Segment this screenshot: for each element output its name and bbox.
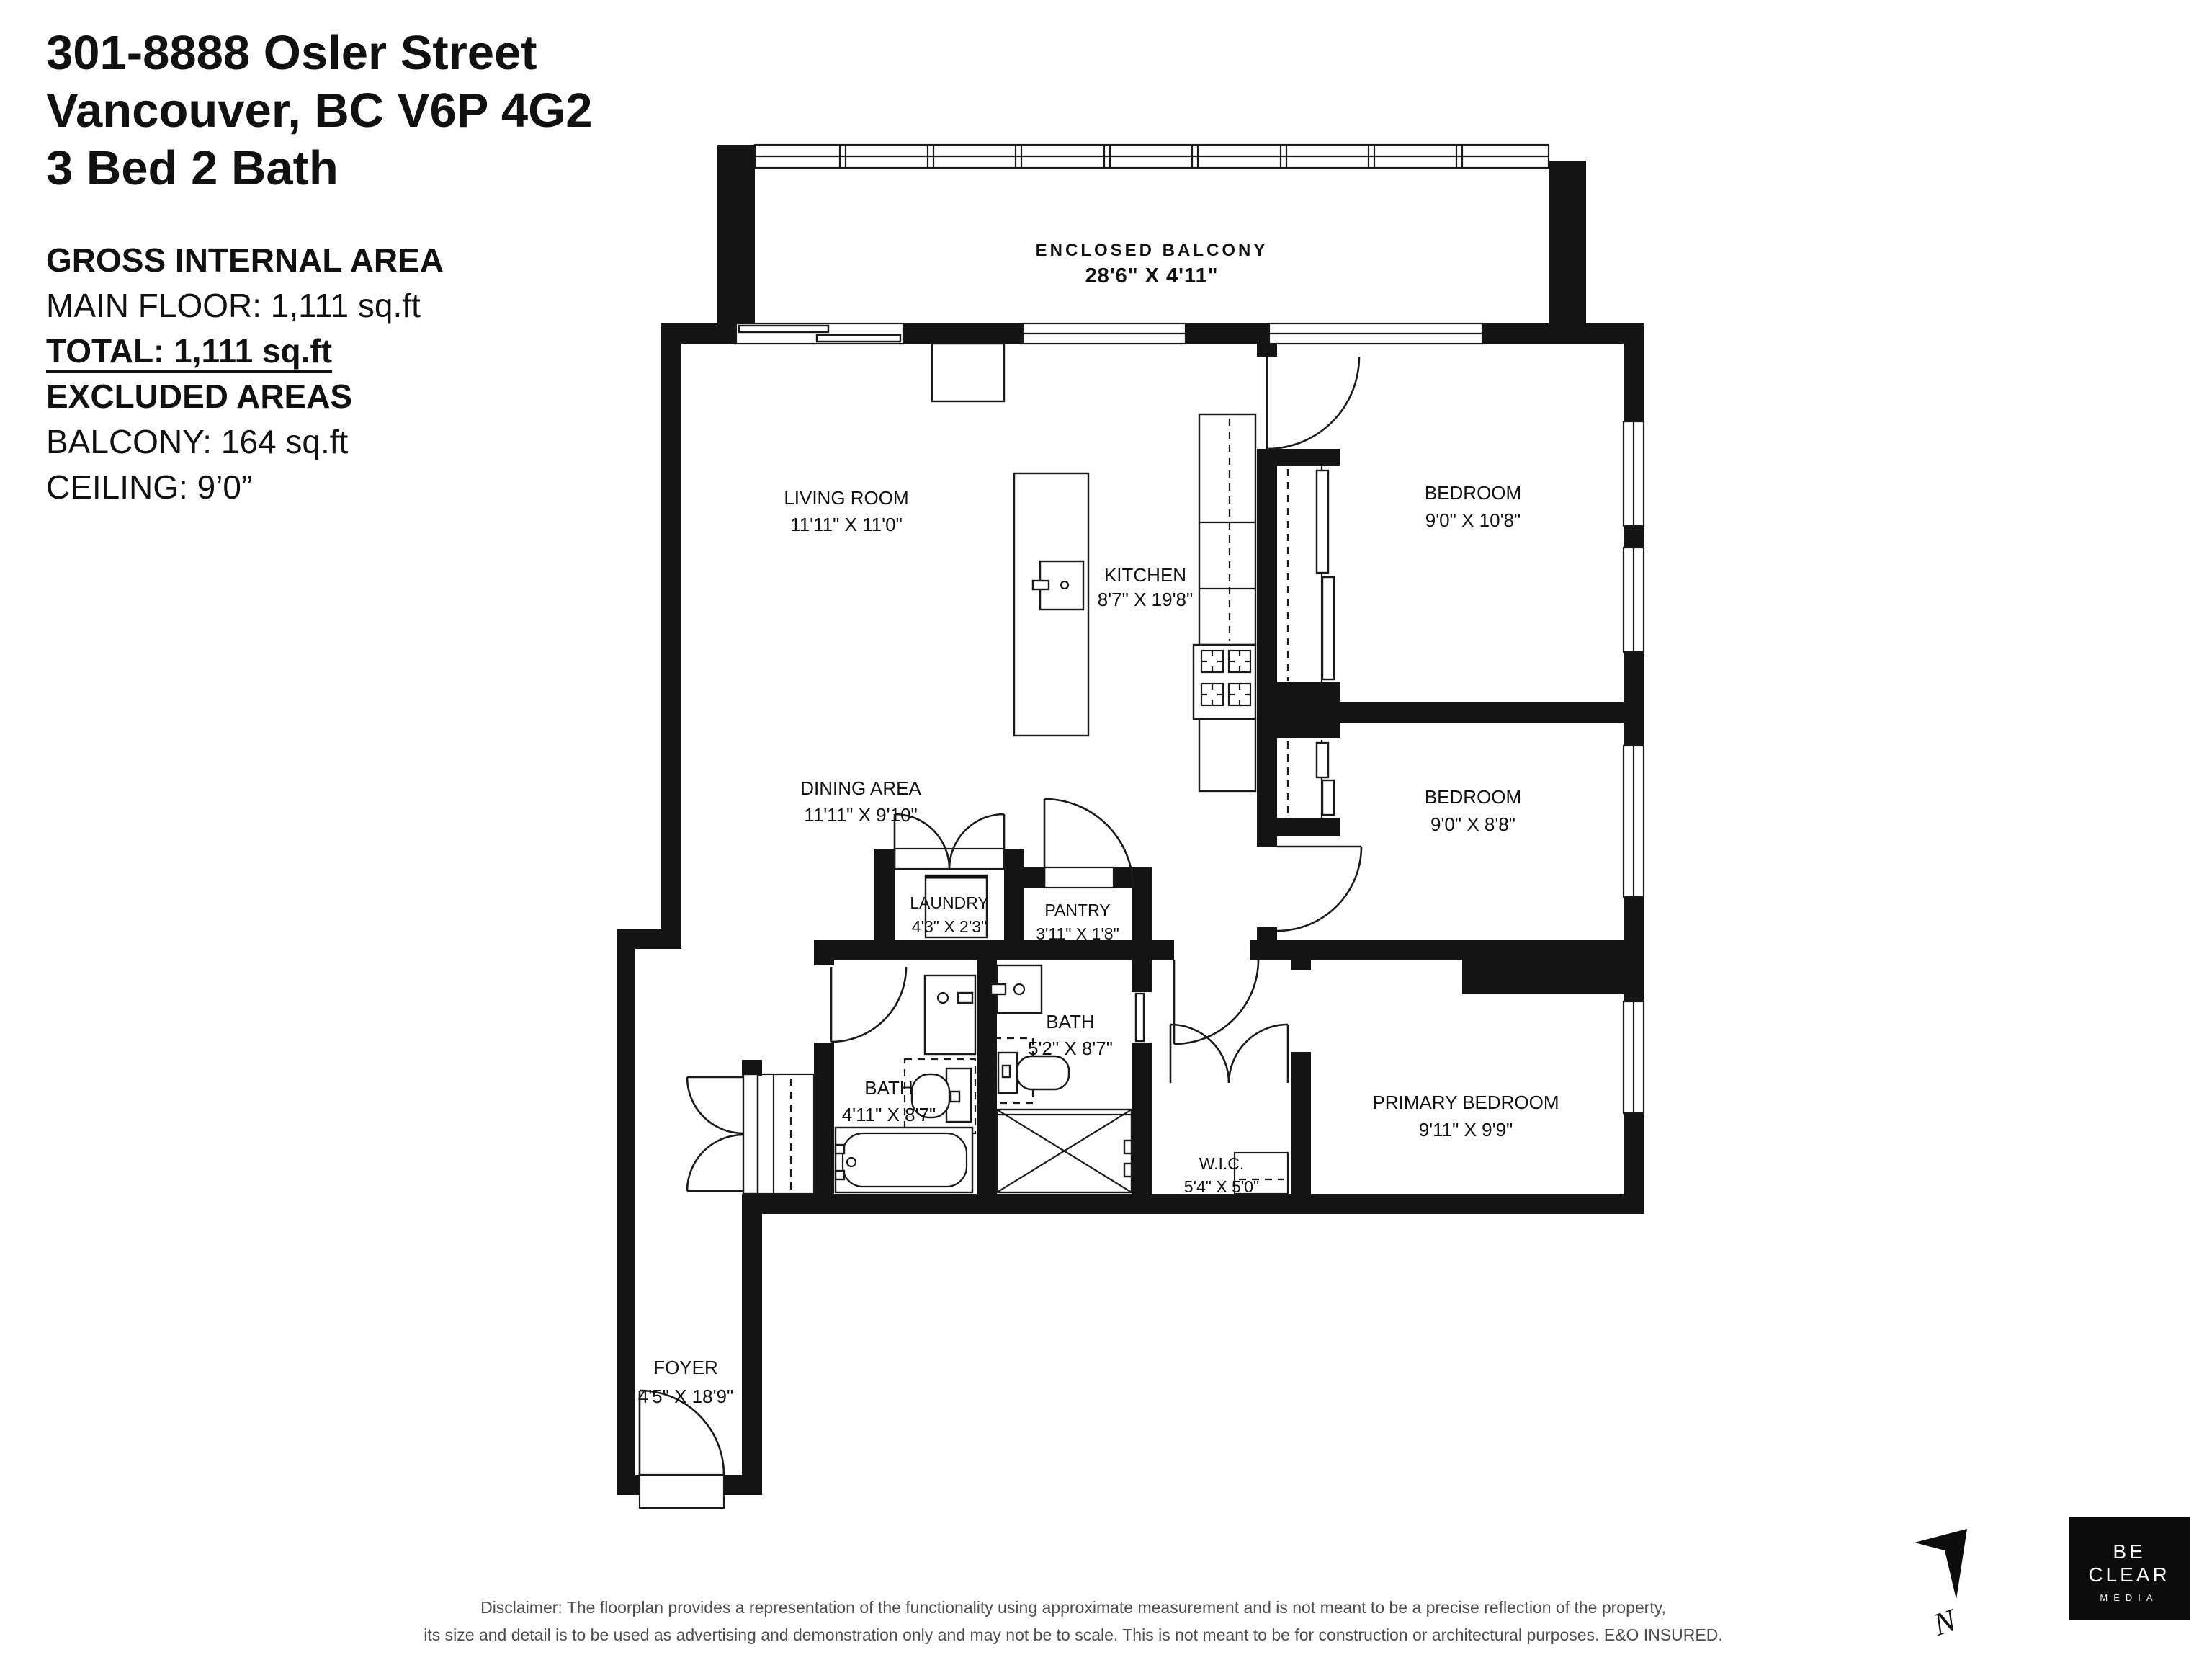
bedroom1-door xyxy=(1267,357,1359,449)
room-label-bedroom-1: BEDROOM xyxy=(1425,482,1521,504)
balcony-sliding-door xyxy=(736,323,903,344)
gross-internal-area-title: GROSS INTERNAL AREA xyxy=(46,238,444,283)
bath1-vanity xyxy=(925,976,975,1054)
bath2-door xyxy=(1136,994,1144,1041)
total-area: TOTAL: 1,111 sq.ft xyxy=(46,329,444,374)
room-dims-bedroom-2: 9'0" X 8'8" xyxy=(1430,813,1515,835)
room-dims-enclosed-balcony: 28'6" X 4'11" xyxy=(1085,264,1219,287)
room-label-kitchen: KITCHEN xyxy=(1104,564,1186,586)
room-dims-bath-2: 5'2" X 8'7" xyxy=(1028,1037,1113,1059)
foyer-closet xyxy=(743,1074,814,1194)
disclaimer-line-2: its size and detail is to be used as adv… xyxy=(173,1621,1974,1648)
bath2-vanity xyxy=(991,965,1042,1013)
living-top-window xyxy=(1023,323,1186,344)
room-dims-living-room: 11'11" X 11'0" xyxy=(790,514,903,535)
room-label-enclosed-balcony: ENCLOSED BALCONY xyxy=(1036,241,1268,260)
stove xyxy=(1194,645,1255,719)
bedroom1-window-1 xyxy=(1624,421,1644,526)
entry-door xyxy=(640,1391,724,1508)
bedroom2-door xyxy=(1277,847,1361,931)
ceiling-height: CEILING: 9’0” xyxy=(46,465,444,510)
bed-bath-count: 3 Bed 2 Bath xyxy=(46,140,593,197)
property-title: 301-8888 Osler Street Vancouver, BC V6P … xyxy=(46,24,593,197)
room-label-dining-area: DINING AREA xyxy=(800,777,921,799)
wic-doors xyxy=(1170,1025,1288,1083)
kitchen-counter xyxy=(1199,414,1255,791)
shower xyxy=(997,1110,1132,1192)
room-dims-wic: 5'4" X 5'0" xyxy=(1184,1177,1259,1196)
column xyxy=(932,344,1004,401)
balcony-area: BALCONY: 164 sq.ft xyxy=(46,419,444,465)
bathtub xyxy=(836,1128,972,1192)
north-arrow-icon xyxy=(1915,1529,1967,1599)
room-labels: ENCLOSED BALCONY 28'6" X 4'11" LIVING RO… xyxy=(638,241,1559,1407)
room-dims-dining-area: 11'11" X 9'10" xyxy=(804,804,918,826)
floorplan-page: 301-8888 Osler Street Vancouver, BC V6P … xyxy=(0,0,2212,1660)
excluded-areas-title: EXCLUDED AREAS xyxy=(46,374,444,419)
room-label-bath-main: BATH xyxy=(864,1077,913,1099)
north-label: N xyxy=(1928,1602,1962,1643)
primary-window xyxy=(1624,1001,1644,1113)
room-dims-bath-main: 4'11" X 8'7" xyxy=(842,1104,936,1125)
hall-door xyxy=(1174,960,1258,1044)
bedroom1-window-2 xyxy=(1624,548,1644,652)
room-label-pantry: PANTRY xyxy=(1044,901,1110,919)
main-floor-area: MAIN FLOOR: 1,111 sq.ft xyxy=(46,283,444,329)
room-label-foyer: FOYER xyxy=(653,1357,718,1378)
room-label-wic: W.I.C. xyxy=(1199,1154,1245,1173)
room-label-bath-2: BATH xyxy=(1046,1011,1094,1032)
room-dims-foyer: 4'5" X 18'9" xyxy=(638,1385,733,1407)
logo-line-1: BE CLEAR xyxy=(2069,1540,2190,1587)
bedroom2-window xyxy=(1624,746,1644,897)
kitchen-island xyxy=(1014,473,1088,736)
kitchen-top-window xyxy=(1269,323,1482,344)
room-dims-primary-bedroom: 9'11" X 9'9" xyxy=(1419,1119,1513,1141)
bedroom1-closet xyxy=(1288,466,1334,682)
floor-plan-svg: ENCLOSED BALCONY 28'6" X 4'11" LIVING RO… xyxy=(598,133,1664,1538)
foyer-closet-doors xyxy=(687,1077,743,1191)
balcony-window-band xyxy=(755,145,1549,168)
room-label-living-room: LIVING ROOM xyxy=(784,487,908,509)
logo-line-2: MEDIA xyxy=(2069,1592,2190,1603)
room-dims-kitchen: 8'7" X 19'8" xyxy=(1098,589,1193,610)
room-dims-pantry: 3'11" X 1'8" xyxy=(1036,924,1119,943)
disclaimer: Disclaimer: The floorplan provides a rep… xyxy=(173,1594,1974,1648)
room-label-bedroom-2: BEDROOM xyxy=(1425,786,1521,808)
room-label-primary-bedroom: PRIMARY BEDROOM xyxy=(1372,1092,1559,1113)
address-line-2: Vancouver, BC V6P 4G2 xyxy=(46,82,593,140)
bedroom2-closet xyxy=(1288,740,1334,818)
area-summary: GROSS INTERNAL AREA MAIN FLOOR: 1,111 sq… xyxy=(46,238,444,510)
address-line-1: 301-8888 Osler Street xyxy=(46,24,593,82)
room-dims-bedroom-1: 9'0" X 10'8" xyxy=(1425,509,1521,531)
room-dims-laundry: 4'3" X 2'3" xyxy=(912,917,987,936)
beclear-logo: BE CLEAR MEDIA xyxy=(2069,1517,2190,1620)
room-label-laundry: LAUNDRY xyxy=(910,893,989,912)
bath1-door xyxy=(831,967,906,1042)
disclaimer-line-1: Disclaimer: The floorplan provides a rep… xyxy=(173,1594,1974,1621)
north-arrow: N xyxy=(1894,1519,2038,1656)
